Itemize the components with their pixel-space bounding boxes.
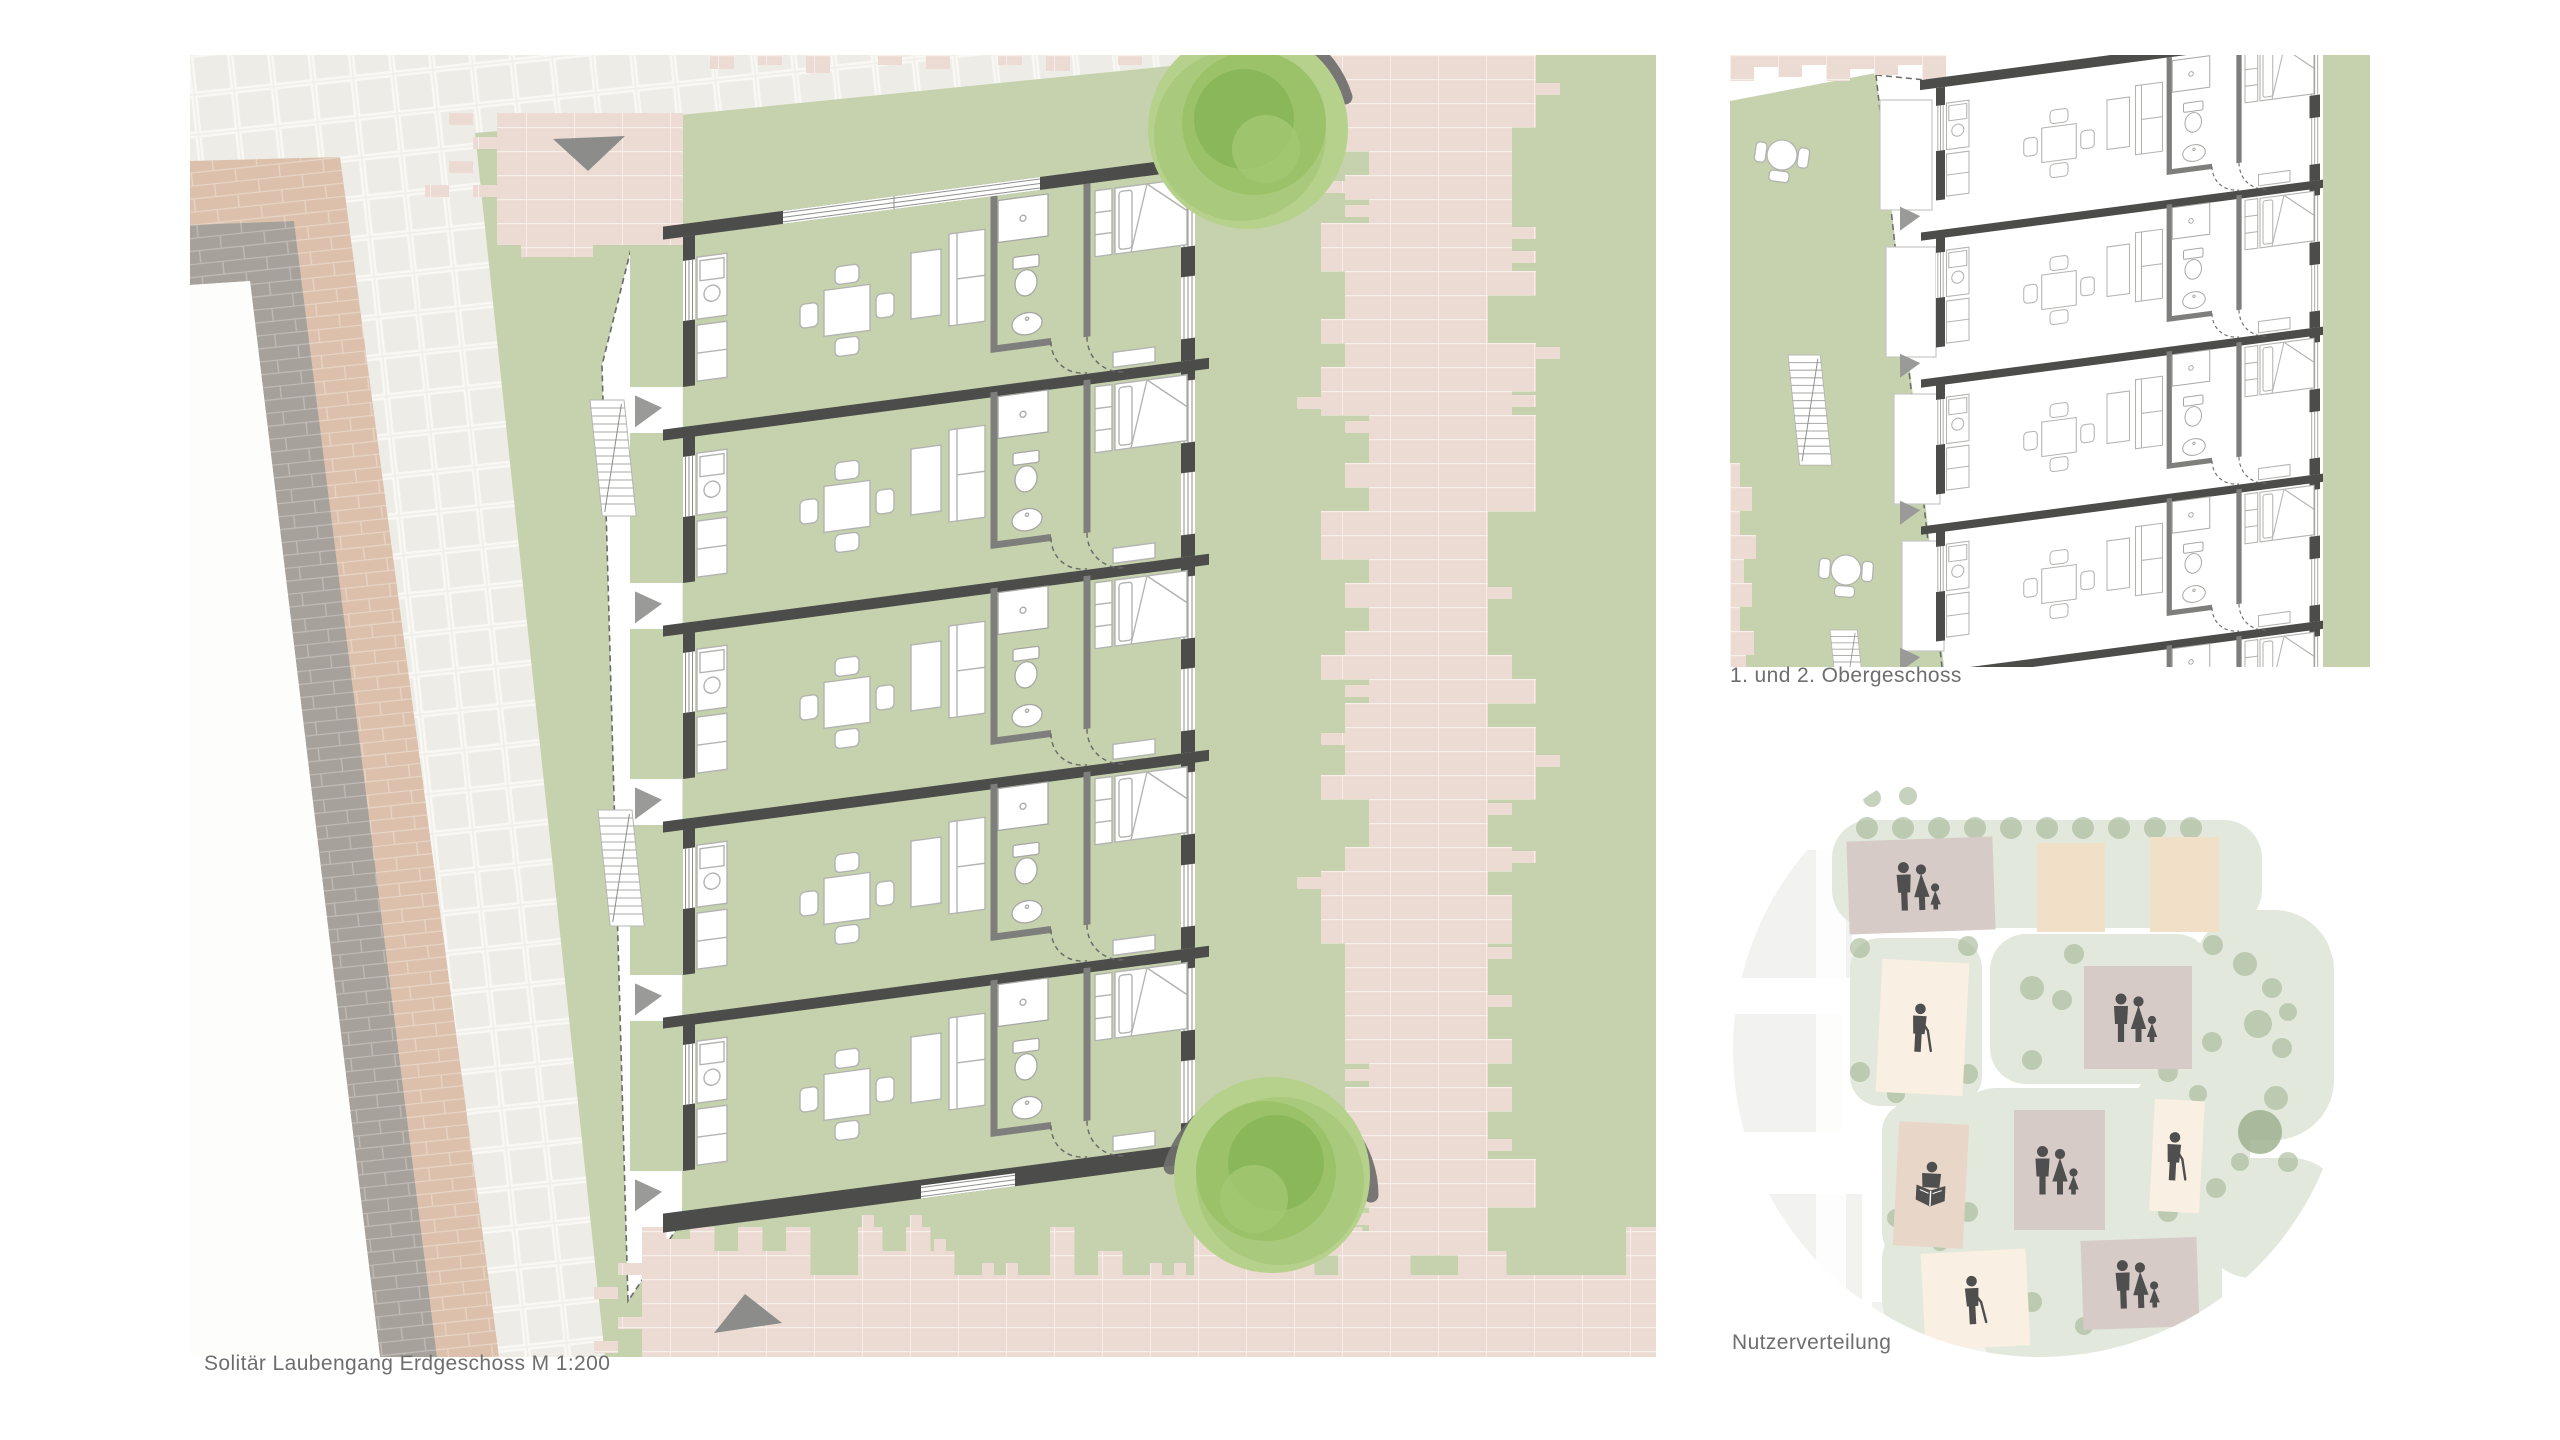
- user-block-reader: [1893, 1121, 1969, 1248]
- tree-dot: [1850, 938, 1870, 958]
- user-block-single: [2037, 843, 2105, 932]
- user-block-senior: [2149, 1099, 2205, 1213]
- tree-dot: [2108, 817, 2130, 839]
- tree-dot: [1863, 789, 1881, 807]
- tree-dot: [2203, 935, 2223, 955]
- tree-dot: [2278, 1152, 2298, 1172]
- site-plan-canvas: [0, 0, 2560, 1440]
- tree-dot: [1892, 817, 1914, 839]
- user-block-senior: [1921, 1248, 2031, 1350]
- tree-dot: [1899, 787, 1917, 805]
- user-block-family: [2084, 966, 2192, 1069]
- tree-dot: [2052, 990, 2072, 1010]
- tree-dot: [2244, 1010, 2272, 1038]
- tree-dot: [1856, 817, 1878, 839]
- user-distribution-diagram: [1692, 743, 2382, 1382]
- tree-dot: [1958, 936, 1978, 956]
- user-block-family: [1846, 836, 1995, 934]
- tree-dot: [2231, 1153, 2249, 1171]
- user-block-senior: [1876, 959, 1970, 1096]
- tree-dot: [2206, 1178, 2226, 1198]
- tree-dot: [2279, 1003, 2297, 1021]
- tree-dot: [2180, 817, 2202, 839]
- tree-dot: [2064, 944, 2084, 964]
- unit-gardens: [630, 237, 683, 1171]
- lawn-strip: [2323, 55, 2370, 667]
- tree-dot: [2072, 817, 2094, 839]
- main-plan-caption: Solitär Laubengang Erdgeschoss M 1:200: [204, 1352, 610, 1376]
- tree-dot: [2233, 952, 2257, 976]
- tree-dot: [1850, 1062, 1870, 1082]
- architectural-drawing-sheet: Solitär Laubengang Erdgeschoss M 1:200 1…: [0, 0, 2560, 1440]
- user-block-single: [2150, 837, 2219, 932]
- user-block-family: [2014, 1110, 2105, 1230]
- distribution-caption: Nutzerverteilung: [1732, 1331, 1891, 1355]
- tree-dot: [2000, 817, 2022, 839]
- tree-dot: [2262, 978, 2282, 998]
- tree-dot: [2189, 1085, 2207, 1103]
- tree-dot: [2264, 1086, 2288, 1110]
- tree-dot: [2202, 1032, 2222, 1052]
- tree-dot: [2272, 1038, 2292, 1058]
- tree-dot: [1928, 817, 1950, 839]
- tree-dot: [2036, 817, 2058, 839]
- upper-floor-plan: [1730, 25, 2370, 832]
- tree-dot: [2144, 817, 2166, 839]
- user-block-family: [2080, 1237, 2199, 1330]
- tree-dot: [2238, 1110, 2282, 1154]
- tree-dot: [2022, 1050, 2042, 1070]
- tree-dot: [2020, 976, 2044, 1000]
- tree-dot: [1964, 817, 1986, 839]
- main-floor-plan: [190, 25, 1675, 1359]
- upper-plan-caption: 1. und 2. Obergeschoss: [1730, 664, 1962, 688]
